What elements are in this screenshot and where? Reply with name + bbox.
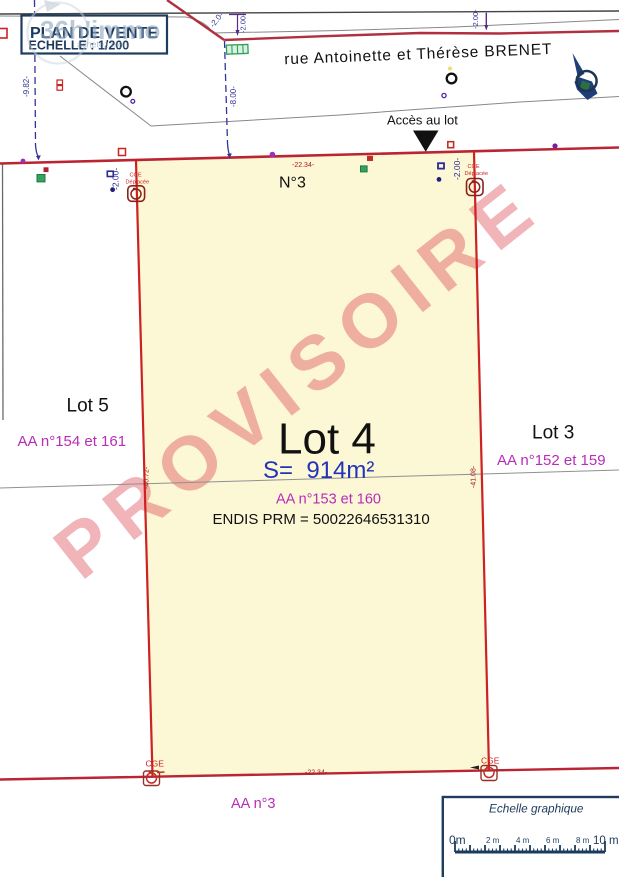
svg-text:Déplacée: Déplacée — [126, 180, 150, 186]
svg-text:AA n°153 et 160: AA n°153 et 160 — [276, 492, 381, 508]
svg-text:Lot 5: Lot 5 — [67, 396, 109, 417]
svg-text:Déplacée: Déplacée — [465, 171, 489, 177]
svg-text:-8.00-: -8.00- — [229, 86, 238, 107]
svg-text:-9.82-: -9.82- — [22, 76, 31, 97]
svg-text:ENDIS PRM = 50022646531310: ENDIS PRM = 50022646531310 — [213, 511, 430, 528]
svg-text:Echelle graphique: Echelle graphique — [489, 802, 584, 816]
svg-text:-2.00-: -2.00- — [471, 9, 480, 29]
svg-text:Lot 3: Lot 3 — [532, 423, 574, 444]
svg-text:N°3: N°3 — [279, 175, 306, 192]
svg-text:-2.00-: -2.00- — [239, 13, 248, 33]
svg-text:CGE: CGE — [130, 173, 142, 179]
svg-text:CGE: CGE — [468, 164, 480, 170]
svg-text:-22.34-: -22.34- — [292, 162, 315, 169]
svg-text:-2.00-: -2.00- — [452, 158, 462, 180]
svg-text:6 m: 6 m — [546, 836, 560, 845]
svg-text:AA n°154 et 161: AA n°154 et 161 — [18, 433, 127, 450]
svg-text:-40.72-: -40.72- — [144, 466, 151, 489]
svg-text:-22.34-: -22.34- — [305, 770, 328, 777]
svg-text:CGE: CGE — [146, 759, 165, 769]
svg-text:Accès au lot: Accès au lot — [387, 113, 458, 128]
svg-text:CGE: CGE — [481, 756, 500, 766]
svg-text:S= 914m²: S= 914m² — [263, 457, 374, 484]
svg-text:-41.08-: -41.08- — [471, 465, 478, 488]
svg-text:8 m: 8 m — [576, 836, 590, 845]
svg-text:achetez bien: achetez bien — [77, 40, 128, 50]
svg-text:2 m: 2 m — [486, 836, 500, 845]
svg-text:4 m: 4 m — [516, 836, 530, 845]
svg-text:0m: 0m — [449, 833, 466, 847]
svg-text:10 m: 10 m — [593, 835, 619, 847]
svg-text:AA n°3: AA n°3 — [231, 796, 276, 812]
svg-text:-2.00-: -2.00- — [111, 168, 121, 190]
svg-text:AA n°152 et 159: AA n°152 et 159 — [497, 452, 606, 469]
